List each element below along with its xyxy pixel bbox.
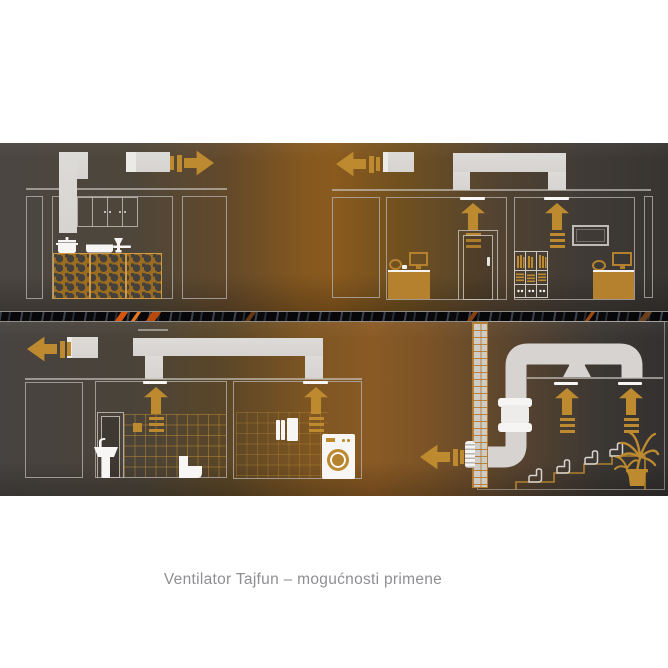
picture-frame-icon [572,225,609,246]
washing-machine-icon [322,434,355,479]
ceiling-mark [138,329,168,331]
accent-tile [133,423,142,432]
honeycomb-counter [53,253,162,299]
cup-icon [402,265,407,269]
exhaust-duct [383,152,414,172]
wall-section-box [332,197,380,298]
towels-icon [276,418,299,442]
sink-icon [93,437,119,478]
counter-divider [89,254,91,298]
caption: Ventilator Tajfun – mogućnosti primene [0,571,606,589]
cabinet-handle [109,211,111,213]
ceiling-line [25,378,362,380]
exhaust-duct [67,337,98,358]
cabinet-handle [104,211,106,213]
palm-plant-icon [612,424,660,490]
counter-divider [125,254,127,298]
ceiling-vent-strip [143,381,167,384]
wall-grille-icon [465,441,475,468]
cinema-seat-icon [555,458,572,474]
ceiling-duct-leg [453,172,470,190]
ceiling-line [26,188,227,190]
wall-cabinets [77,197,138,227]
computer-monitor-icon [612,252,632,266]
ceiling-vent-strip [460,197,485,200]
ceiling-vent-strip [303,381,328,384]
computer-monitor-icon [409,252,428,266]
illustration-canvas: Ventilator Tajfun – mogućnosti primene [0,0,668,668]
cooking-pot-icon [56,237,78,253]
frying-pan-icon [86,242,131,253]
office-desk [593,270,634,299]
office-desk [388,270,430,299]
cinema-seat-icon [527,467,544,483]
door-icon [463,235,493,300]
room-box [182,196,227,299]
ceiling-vent-strip [544,197,569,200]
ceiling-line [527,377,663,379]
ceiling-duct-leg [305,356,323,379]
wall-section-box [644,196,653,298]
airflow-up-arrow [304,387,328,432]
cabinet-handle [119,211,121,213]
ceiling-vent-strip [554,382,578,385]
airflow-left-arrow [27,335,71,363]
wine-glass-icon [113,238,124,253]
ceiling-duct [453,153,566,172]
airflow-up-arrow [545,203,569,248]
airflow-right-arrow [170,149,214,177]
ceiling-duct-leg [548,172,566,190]
office-chair-icon [389,259,402,270]
bookshelf-icon [514,251,548,298]
room-box [25,382,83,478]
kitchen-hood-duct [59,152,77,233]
toilet-icon [176,456,202,478]
airflow-left-arrow [336,150,380,178]
ceiling-line [332,189,651,191]
airflow-up-arrow [555,388,579,433]
airflow-left-arrow [420,443,464,471]
ceiling-vent-strip [618,382,642,385]
airflow-up-arrow [144,387,168,432]
wall-section-box [26,196,43,299]
ceiling-duct-leg [145,356,163,379]
cabinet-handle [124,211,126,213]
ceiling-duct [133,338,323,356]
exhaust-duct [126,152,170,172]
cinema-seat-icon [583,449,600,465]
door-handle [487,257,490,266]
